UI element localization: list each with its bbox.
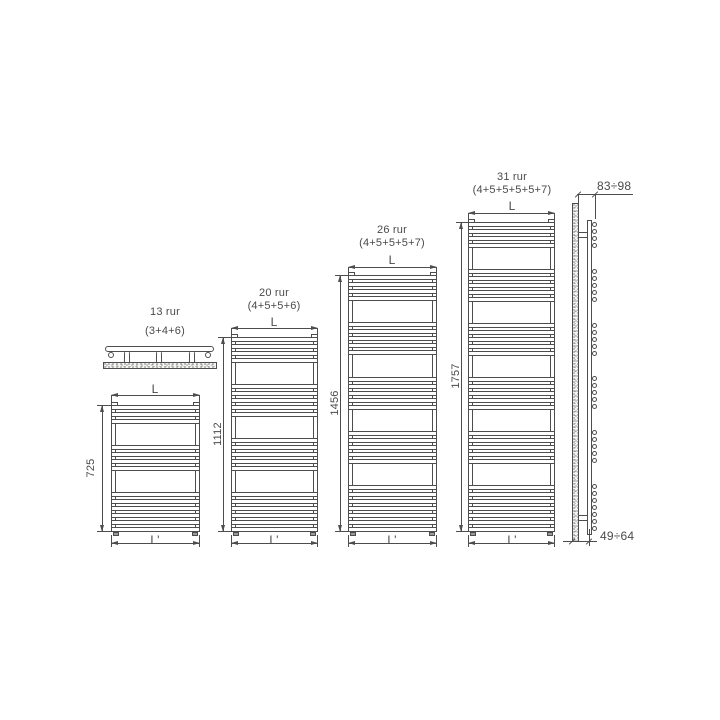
radiator-tube [231, 391, 318, 396]
radiator2-formula: (4+5+5+6) [224, 300, 324, 312]
radiator-tube [468, 485, 555, 490]
side-view-tube-end [592, 397, 597, 402]
side-view-tube-end [592, 222, 597, 227]
radiator-tube [348, 384, 437, 389]
dim-height-tick-bottom [97, 531, 111, 532]
radiator1-height-label: 725 [85, 438, 97, 498]
radiator-tube [348, 527, 437, 532]
side-dim-top-ext-front [595, 194, 596, 219]
side-view-bracket-bottom [579, 515, 587, 521]
side-dim-top-line [577, 194, 633, 195]
radiator-tube [348, 282, 437, 287]
radiator-tube [468, 445, 555, 450]
radiator-tube [468, 236, 555, 241]
dim-L-line [348, 267, 437, 268]
radiator2-title: 20 rur [224, 287, 324, 299]
radiator-tube [468, 438, 555, 443]
radiator-tube [348, 438, 437, 443]
radiator-tube [348, 350, 437, 355]
dim-L2-arrow-left [111, 541, 118, 545]
radiator-tube [468, 377, 555, 382]
side-view-tube-end [592, 512, 597, 517]
radiator-foot-left [470, 532, 476, 536]
radiator-tube [468, 283, 555, 288]
side-view-tube-end [592, 505, 597, 510]
side-view-tube-end [592, 390, 597, 395]
radiator-tube [468, 398, 555, 403]
side-view-tube-end [592, 451, 597, 456]
side-view-tube-end [592, 444, 597, 449]
radiator3-formula: (4+5+5+5+7) [342, 237, 442, 249]
dim-L-arrow-right [430, 265, 437, 269]
radiator-tube [468, 222, 555, 227]
radiator-tube [468, 337, 555, 342]
side-view-depth-bottom-label: 49÷64 [600, 530, 644, 542]
radiator4-formula: (4+5+5+5+5+7) [462, 184, 562, 196]
radiator-tube [348, 506, 437, 511]
radiator-tube [468, 452, 555, 457]
dim-height-tick-top [335, 275, 348, 276]
side-dim-bottom-ext [589, 529, 590, 546]
side-dim-top-ext-wall [578, 194, 579, 203]
plan-view-bracket [156, 352, 162, 362]
radiator-tube [348, 431, 437, 436]
plan-view-collector-left [108, 352, 114, 358]
radiator4-bottom-width-label: L' [482, 534, 542, 546]
radiator1-bottom-width-label: L' [125, 534, 185, 546]
radiator3-title: 26 rur [342, 224, 442, 236]
side-view-tube-end [592, 437, 597, 442]
dim-height-tick-bottom [456, 531, 468, 532]
radiator-tube [468, 297, 555, 302]
radiator-tube [348, 499, 437, 504]
side-view-tube-end [592, 526, 597, 531]
radiator-foot-right [547, 532, 553, 536]
radiator1-formula: (3+4+6) [115, 325, 215, 337]
radiator-tube [111, 452, 200, 457]
side-view-bracket-top [579, 232, 587, 238]
dim-height-arrow-top [221, 337, 225, 344]
radiator3-bottom-width-label: L' [362, 534, 422, 546]
radiator-tube [231, 351, 318, 356]
radiator-tube [468, 243, 555, 248]
radiator-foot-right [192, 532, 198, 536]
side-view-tube-end [592, 519, 597, 524]
radiator-tube [468, 351, 555, 356]
side-view-depth-top-label: 83÷98 [597, 180, 641, 192]
radiator-tube [231, 412, 318, 417]
dim-L-arrow-right [548, 211, 555, 215]
radiator-tube [468, 323, 555, 328]
radiator-tube [348, 322, 437, 327]
dim-height-line [223, 337, 224, 532]
dim-height-line [461, 222, 462, 532]
side-view-tube-end [592, 243, 597, 248]
dim-height-line [102, 405, 103, 532]
radiator-tube [468, 492, 555, 497]
dim-L2-arrow-right [548, 541, 555, 545]
radiator-tube [111, 520, 200, 525]
radiator-tube [468, 229, 555, 234]
dim-L2-arrow-left [468, 541, 475, 545]
radiator-tube [348, 459, 437, 464]
radiator-foot-left [233, 532, 239, 536]
side-view-tube-end [592, 404, 597, 409]
dim-L2-arrow-left [231, 541, 238, 545]
side-view-tube-end [592, 498, 597, 503]
dim-L2-line [348, 543, 437, 544]
radiator-tube [348, 377, 437, 382]
side-view-tube-end [592, 376, 597, 381]
plan-view-wall [103, 362, 217, 369]
radiator-tube [231, 384, 318, 389]
radiator-tube [348, 513, 437, 518]
side-dim-bottom-line [563, 541, 597, 542]
side-view-tube-end [592, 491, 597, 496]
side-view-tube-end [592, 323, 597, 328]
radiator-tube [231, 398, 318, 403]
radiator-size-diagram: 13 rur (3+4+6) L 725 L' 20 rur (4+5+5+6)… [0, 0, 720, 720]
radiator-tube [468, 384, 555, 389]
radiator-tube [111, 405, 200, 410]
radiator-foot-right [429, 532, 435, 536]
radiator1-width-label: L [125, 383, 185, 395]
radiator-tube [231, 445, 318, 450]
side-view-tube-end [592, 484, 597, 489]
plan-view-collector-right [205, 352, 211, 358]
radiator-foot-right [310, 532, 316, 536]
radiator-tube [231, 466, 318, 471]
dim-height-arrow-top [338, 275, 342, 282]
dim-L2-arrow-right [193, 541, 200, 545]
radiator-tube [231, 520, 318, 525]
radiator-tube [468, 269, 555, 274]
dim-L2-arrow-right [311, 541, 318, 545]
radiator-tube [468, 391, 555, 396]
radiator-tube [231, 452, 318, 457]
side-view-tube-end [592, 269, 597, 274]
side-view-tube-end [592, 330, 597, 335]
side-view-tube-end [592, 430, 597, 435]
radiator-tube [231, 492, 318, 497]
side-view-tube-end [592, 351, 597, 356]
radiator-tube [348, 296, 437, 301]
radiator-tube [348, 391, 437, 396]
side-view-tube-end [592, 337, 597, 342]
radiator-tube [348, 398, 437, 403]
radiator-tube [468, 499, 555, 504]
radiator-tube [231, 358, 318, 363]
radiator-tube [348, 485, 437, 490]
side-view-wall [572, 203, 579, 542]
radiator-tube [231, 337, 318, 342]
dim-L2-line [111, 543, 200, 544]
radiator-tube [231, 405, 318, 410]
dim-height-tick-top [456, 222, 468, 223]
dim-L2-arrow-right [430, 541, 437, 545]
radiator-tube [111, 492, 200, 497]
dim-L-line [111, 395, 200, 396]
radiator-tube [348, 275, 437, 280]
radiator-tube [111, 412, 200, 417]
dim-L-arrow-left [231, 326, 238, 330]
dim-height-tick-top [97, 405, 111, 406]
radiator3-width-label: L [362, 254, 422, 266]
radiator1-title: 13 rur [115, 306, 215, 318]
radiator-tube [468, 506, 555, 511]
side-view-tube-end [592, 383, 597, 388]
dim-L2-line [231, 543, 318, 544]
radiator2-bottom-width-label: L' [244, 534, 304, 546]
radiator-foot-left [113, 532, 119, 536]
radiator4-title: 31 rur [462, 171, 562, 183]
side-view-tube-end [592, 283, 597, 288]
dim-L-arrow-left [111, 393, 118, 397]
plan-view-tube-bar [105, 346, 214, 352]
dim-L2-line [468, 543, 555, 544]
radiator-tube [111, 513, 200, 518]
dim-L-line [231, 328, 318, 329]
radiator-tube [111, 527, 200, 532]
side-view-tube-end [592, 344, 597, 349]
radiator-tube [348, 336, 437, 341]
radiator-tube [348, 445, 437, 450]
radiator-tube [231, 513, 318, 518]
side-view-tube-end [592, 236, 597, 241]
radiator-tube [468, 513, 555, 518]
radiator-tube [231, 527, 318, 532]
plan-view-bracket [124, 352, 130, 362]
radiator-foot-left [350, 532, 356, 536]
radiator-tube [111, 459, 200, 464]
dim-L-arrow-left [348, 265, 355, 269]
radiator-tube [231, 506, 318, 511]
radiator-tube [348, 405, 437, 410]
radiator-tube [468, 527, 555, 532]
radiator-tube [111, 466, 200, 471]
radiator-tube [348, 520, 437, 525]
radiator-tube [348, 289, 437, 294]
side-view-tube-end [592, 297, 597, 302]
radiator4-width-label: L [482, 200, 542, 212]
radiator-tube [231, 459, 318, 464]
side-view-tube-end [592, 290, 597, 295]
radiator-tube [468, 520, 555, 525]
dim-L-line [468, 213, 555, 214]
plan-view-bracket [189, 352, 195, 362]
radiator-tube [231, 499, 318, 504]
radiator-tube [468, 344, 555, 349]
radiator-tube [111, 445, 200, 450]
dim-L-arrow-right [193, 393, 200, 397]
radiator-tube [348, 452, 437, 457]
radiator-tube [468, 405, 555, 410]
radiator-tube [111, 506, 200, 511]
radiator-tube [468, 431, 555, 436]
dim-height-arrow-top [100, 405, 104, 412]
side-view-tube-end [592, 458, 597, 463]
dim-height-tick-bottom [335, 531, 348, 532]
radiator-tube [468, 276, 555, 281]
dim-height-tick-bottom [218, 531, 231, 532]
dim-height-tick-top [218, 337, 231, 338]
dim-height-line [340, 275, 341, 532]
radiator-tube [231, 344, 318, 349]
radiator-tube [231, 438, 318, 443]
dim-L-arrow-right [311, 326, 318, 330]
radiator-tube [111, 419, 200, 424]
radiator-tube [111, 499, 200, 504]
dim-L-arrow-left [468, 211, 475, 215]
side-view-tube-end [592, 229, 597, 234]
radiator-tube [348, 343, 437, 348]
radiator2-width-label: L [244, 316, 304, 328]
dim-L2-arrow-left [348, 541, 355, 545]
radiator-tube [468, 290, 555, 295]
dim-height-arrow-top [459, 222, 463, 229]
radiator-tube [348, 492, 437, 497]
radiator-tube [468, 330, 555, 335]
radiator-tube [468, 459, 555, 464]
radiator-tube [348, 329, 437, 334]
side-view-tube-end [592, 276, 597, 281]
